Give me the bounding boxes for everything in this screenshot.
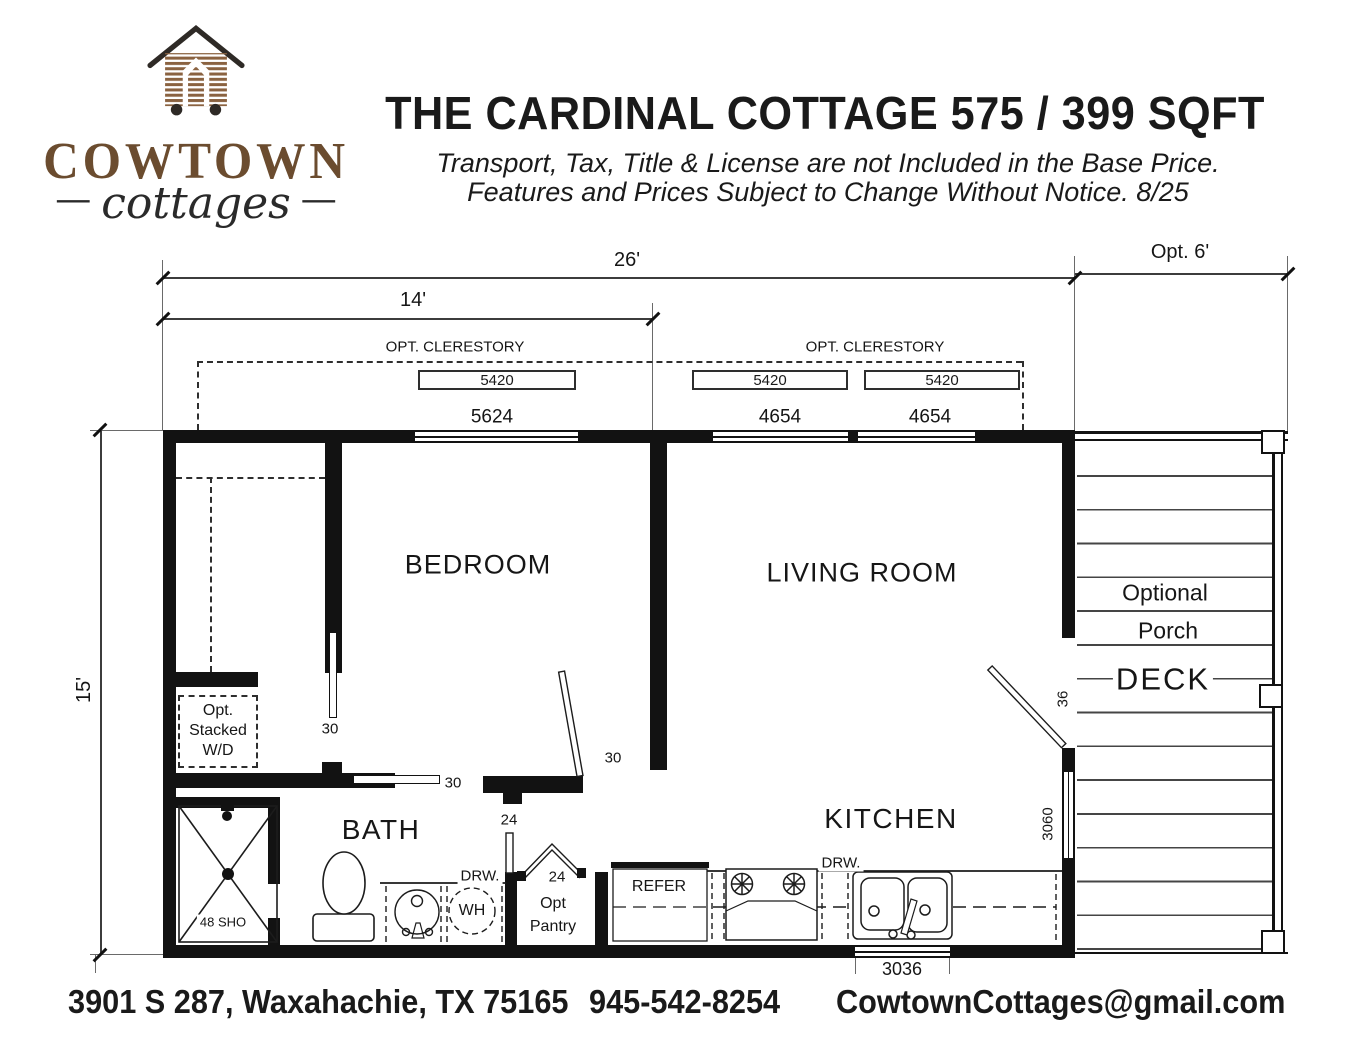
bath-sink xyxy=(395,890,439,934)
refrigerator-label: REFER xyxy=(632,879,686,895)
bath-drawer-label: DRW. xyxy=(458,868,503,885)
footer-address: 3901 S 287, Waxahachie, TX 75165 xyxy=(68,983,568,1021)
doors xyxy=(506,666,1066,881)
washer-dryer-label-3: W/D xyxy=(202,743,233,759)
window-label-3036: 3036 xyxy=(882,960,922,978)
footer-email: CowtownCottages@gmail.com xyxy=(836,983,1285,1021)
shower-head-icon xyxy=(221,805,234,811)
washer-dryer-label-1: Opt. xyxy=(203,703,233,719)
bath-entry-door-leaf xyxy=(506,833,513,873)
shower-label: 48 SHO xyxy=(197,915,249,930)
room-label-bedroom: BEDROOM xyxy=(405,552,552,579)
washer-dryer-label-2: Stacked xyxy=(189,723,247,739)
room-label-kitchen: KITCHEN xyxy=(824,805,957,833)
pantry-label-1: Opt xyxy=(540,896,566,912)
refrigerator xyxy=(611,862,709,941)
door-size-closet: 30 xyxy=(319,721,342,738)
kitchen-drawer-label: DRW. xyxy=(819,855,864,872)
pantry-label-2: Pantry xyxy=(530,919,576,935)
window-label-3060: 3060 xyxy=(1040,804,1057,843)
door-size-bedroom: 30 xyxy=(605,751,622,766)
door-size-pantry: 24 xyxy=(546,869,569,886)
bath-vanity xyxy=(380,883,506,943)
door-size-bath-entry: 24 xyxy=(501,813,518,828)
room-label-bath: BATH xyxy=(342,816,421,844)
footer-phone: 945-542-8254 xyxy=(589,983,780,1021)
water-heater-label: WH xyxy=(459,903,486,919)
bedroom-door-leaf xyxy=(559,671,583,776)
door-size-bath: 30 xyxy=(442,775,465,792)
floor-plan-flyer: COWTOWN — cottages — THE CARDINAL COTTAG… xyxy=(0,0,1350,1043)
toilet xyxy=(313,852,374,941)
room-label-living-room: LIVING ROOM xyxy=(766,560,957,587)
door-size-deck: 36 xyxy=(1055,688,1072,711)
stove xyxy=(726,869,817,940)
kitchen-sink xyxy=(853,872,952,939)
